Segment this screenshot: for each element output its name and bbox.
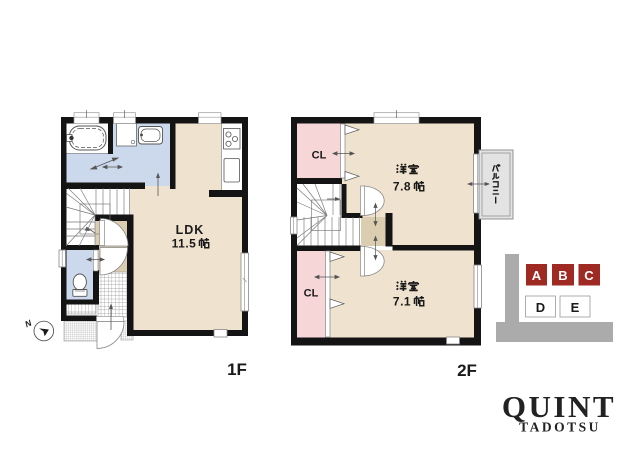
svg-text:7.8: 7.8 [393,180,411,194]
svg-text:D: D [536,300,545,315]
svg-text:C: C [584,268,594,283]
svg-text:11.5: 11.5 [172,237,197,251]
svg-text:CL: CL [312,150,327,162]
svg-text:A: A [532,268,542,283]
svg-text:7.1: 7.1 [393,295,411,309]
svg-text:2F: 2F [457,361,477,380]
svg-text:TADOTSU: TADOTSU [519,420,601,435]
svg-text:E: E [571,300,580,315]
svg-text:CL: CL [304,288,319,300]
svg-text:B: B [558,268,567,283]
svg-text:1F: 1F [227,360,247,379]
svg-text:LDK: LDK [176,223,205,237]
